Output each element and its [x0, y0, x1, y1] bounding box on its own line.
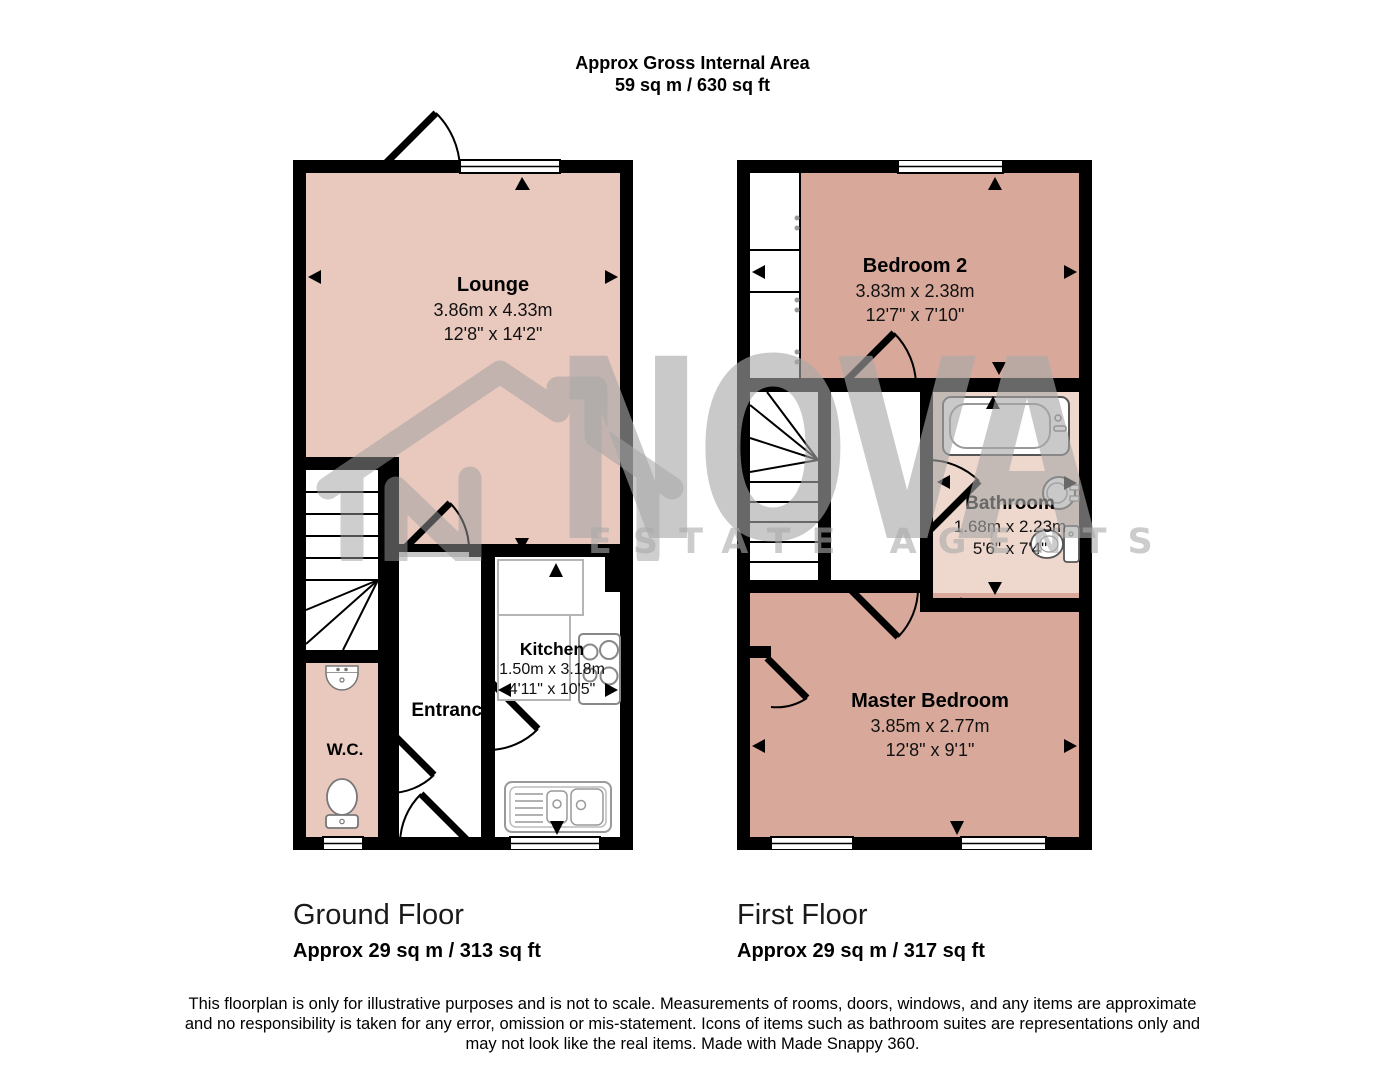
- bedroom2-name: Bedroom 2: [795, 253, 1035, 279]
- lounge-door-sill: [399, 552, 469, 557]
- ground-floor-drawing: [293, 100, 633, 850]
- master-bedroom-imperial: 12'8" x 9'1": [810, 738, 1050, 762]
- wc-label: W.C.: [305, 740, 385, 760]
- lounge-name: Lounge: [373, 272, 613, 298]
- disclaimer-line-1: This floorplan is only for illustrative …: [0, 994, 1385, 1014]
- master-bedroom-name: Master Bedroom: [810, 688, 1050, 714]
- first-floor-plan: Bedroom 2 3.83m x 2.38m 12'7" x 7'10" Ba…: [737, 160, 1092, 850]
- stair-wc-wall: [306, 650, 378, 663]
- kitchen-label: Kitchen 1.50m x 3.18m 4'11" x 10'5": [472, 638, 632, 700]
- bedroom2-metric: 3.83m x 2.38m: [795, 279, 1035, 303]
- bathroom-metric: 1.68m x 2.23m: [930, 516, 1090, 538]
- master-top-wall-left: [750, 580, 845, 593]
- bedroom2-wardrobe: [750, 173, 800, 378]
- bathroom-label: Bathroom 1.68m x 2.23m 5'6" x 7'4": [930, 492, 1090, 560]
- bathroom-left-wall-upper: [920, 392, 933, 460]
- watermark-layer: NOVA ESTATE AGENTS: [0, 0, 1385, 1080]
- master-bedroom-metric: 3.85m x 2.77m: [810, 714, 1050, 738]
- master-window-right: [961, 837, 1046, 850]
- page-title: Approx Gross Internal Area 59 sq m / 630…: [0, 52, 1385, 96]
- bathroom-imperial: 5'6" x 7'4": [930, 538, 1090, 560]
- stair-side-wall: [818, 392, 831, 580]
- kitchen-metric: 1.50m x 3.18m: [472, 660, 632, 680]
- lounge-label: Lounge 3.86m x 4.33m 12'8" x 14'2": [373, 272, 613, 346]
- bedroom2-imperial: 12'7" x 7'10": [795, 303, 1035, 327]
- lounge-imperial: 12'8" x 14'2": [373, 322, 613, 346]
- ground-stairwell: [306, 470, 378, 650]
- disclaimer-line-3: may not look like the real items. Made w…: [0, 1034, 1385, 1054]
- stair-top-wall: [306, 457, 378, 470]
- bedroom2-bottom-wall-left: [750, 378, 837, 392]
- first-floor-area: Approx 29 sq m / 317 sq ft: [737, 936, 985, 966]
- gross-area-title: Approx Gross Internal Area: [0, 52, 1385, 74]
- ground-floor-caption: Ground Floor Approx 29 sq m / 313 sq ft: [293, 898, 541, 966]
- entrance-hall: [399, 557, 481, 837]
- bedroom2-bottom-wall-right: [920, 378, 1079, 392]
- lounge-metric: 3.86m x 4.33m: [373, 298, 613, 322]
- bedroom2-window: [898, 160, 1003, 173]
- ground-floor-area: Approx 29 sq m / 313 sq ft: [293, 936, 541, 966]
- kitchen-name: Kitchen: [472, 638, 632, 660]
- stair-right-wall: [378, 457, 399, 730]
- master-window-left: [771, 837, 853, 850]
- kitchen-imperial: 4'11" x 10'5": [472, 680, 632, 700]
- wc-toilet-icon: [326, 779, 358, 828]
- wc-right-wall: [378, 793, 399, 850]
- master-bedroom-label: Master Bedroom 3.85m x 2.77m 12'8" x 9'1…: [810, 688, 1050, 762]
- kitchen-left-wall-lower: [481, 750, 495, 837]
- first-floor-title: First Floor: [737, 898, 985, 932]
- gross-area-value: 59 sq m / 630 sq ft: [0, 74, 1385, 96]
- ground-floor-title: Ground Floor: [293, 898, 541, 932]
- entrance-label: Entrance: [372, 700, 532, 722]
- kitchen-corner-jog: [605, 544, 620, 592]
- first-floor-caption: First Floor Approx 29 sq m / 317 sq ft: [737, 898, 985, 966]
- wc-window: [323, 837, 363, 850]
- ground-floor-plan: Lounge 3.86m x 4.33m 12'8" x 14'2" Kitch…: [293, 160, 633, 850]
- disclaimer-line-2: and no responsibility is taken for any e…: [0, 1014, 1385, 1034]
- bathtub-icon: [943, 397, 1069, 455]
- disclaimer: This floorplan is only for illustrative …: [0, 994, 1385, 1054]
- kitchen-window: [510, 837, 600, 850]
- landing: [750, 392, 920, 580]
- floorplan-page: Approx Gross Internal Area 59 sq m / 630…: [0, 0, 1385, 1080]
- lounge-top-window: [460, 160, 560, 173]
- bedroom2-label: Bedroom 2 3.83m x 2.38m 12'7" x 7'10": [795, 253, 1035, 327]
- bathroom-name: Bathroom: [930, 492, 1090, 516]
